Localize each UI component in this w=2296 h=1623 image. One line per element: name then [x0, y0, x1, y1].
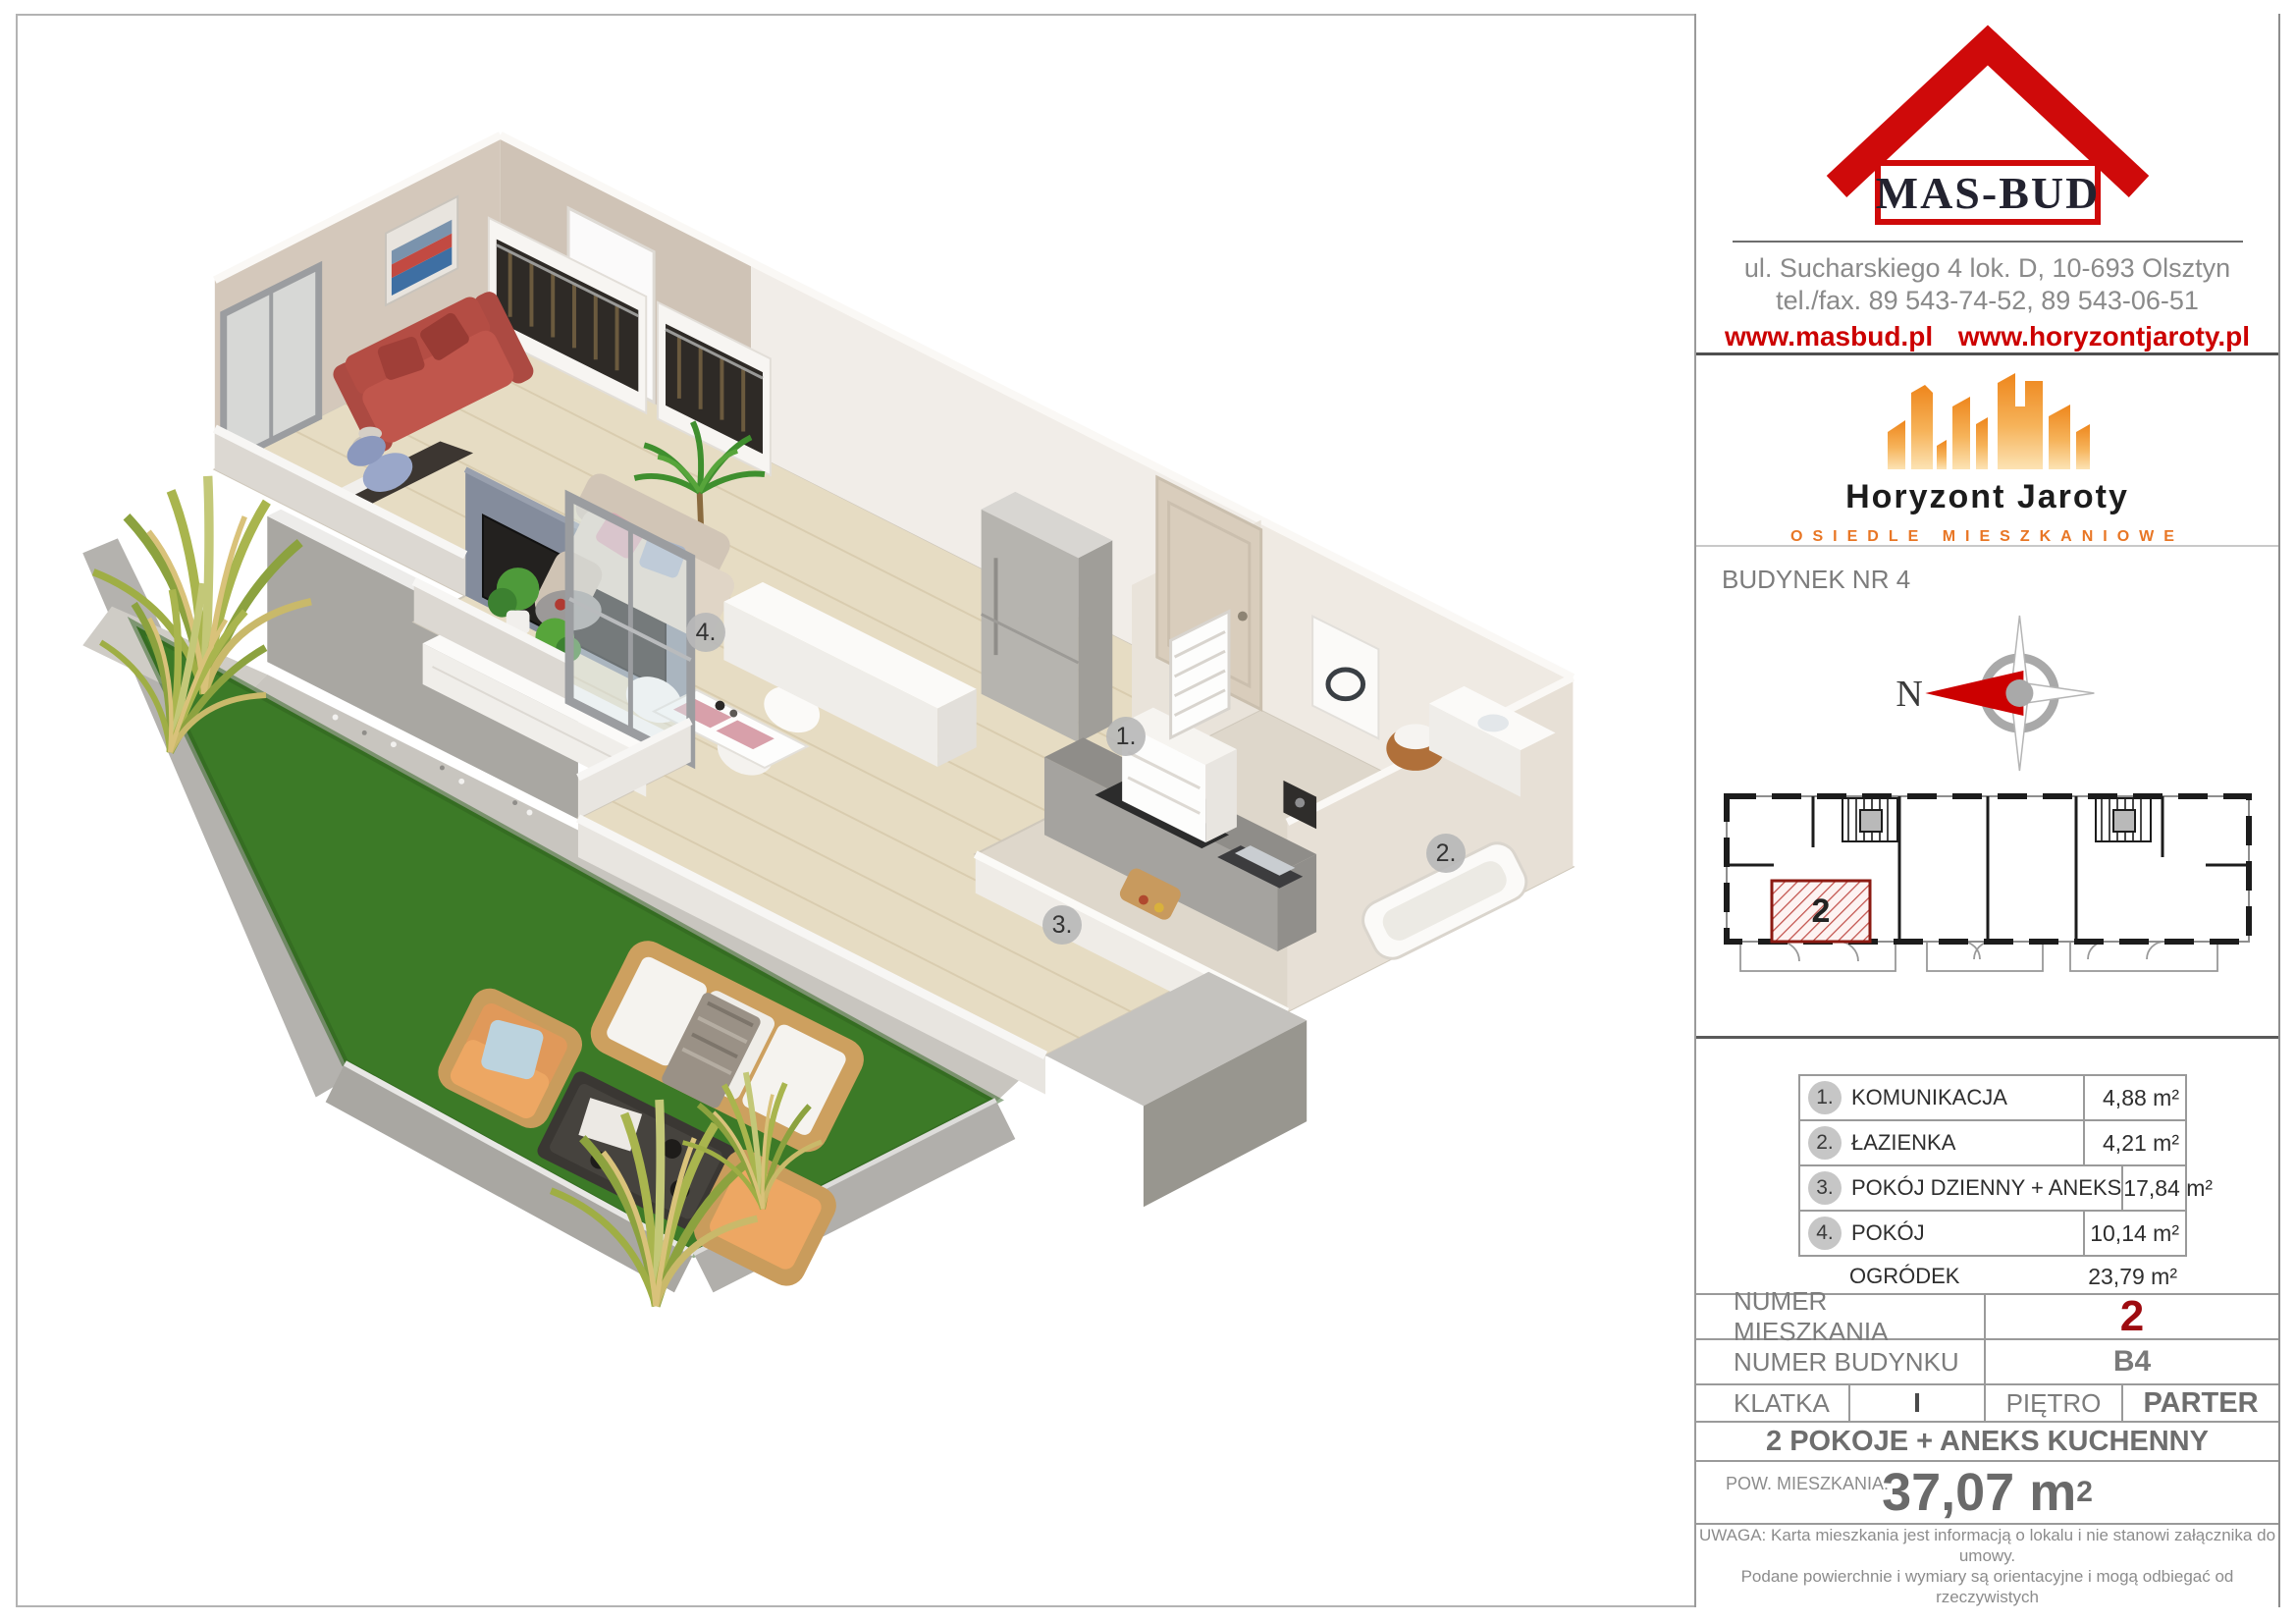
masbud-logo-icon: MAS-BUD	[1816, 24, 2160, 232]
logo-divider	[1733, 241, 2243, 243]
flat-number-value: 2	[1984, 1295, 2278, 1338]
room-area: 4,88	[2103, 1085, 2147, 1111]
disclaimer: UWAGA: Karta mieszkania jest informacją …	[1696, 1525, 2278, 1607]
info-panel: MAS-BUD ul. Sucharskiego 4 lok. D, 10-69…	[1694, 14, 2280, 1607]
room-area: 17,84	[2123, 1175, 2180, 1202]
room-name: POKÓJ	[1851, 1220, 2083, 1246]
staircase-icon-2	[2096, 798, 2151, 841]
building-label: BUDYNEK NR 4	[1696, 547, 2278, 595]
room-area: 10,14	[2090, 1220, 2147, 1247]
room-number-badge: 1.	[1808, 1081, 1842, 1114]
company-name: MAS-BUD	[1875, 168, 2100, 218]
room-name: KOMUNIKACJA	[1851, 1085, 2083, 1110]
building-number-label: NUMER BUDYNKU	[1696, 1340, 1984, 1383]
building-section: BUDYNEK NR 4 N	[1696, 547, 2278, 1039]
klatka-label: KLATKA	[1696, 1385, 1848, 1421]
floorplan-3d-view: 1.2.3.4.	[16, 14, 1694, 1607]
rooms-section: 1. KOMUNIKACJA 4,88 m² 2. ŁAZIENKA 4,21 …	[1696, 1039, 2278, 1293]
total-area-value: 37,07	[1882, 1462, 2014, 1523]
building-number-value: B4	[1984, 1340, 2278, 1383]
flat-number-row: NUMER MIESZKANIA 2	[1696, 1295, 2278, 1340]
room-number-badge: 3.	[1808, 1171, 1842, 1205]
website-horyzont-link[interactable]: www.horyzontjaroty.pl	[1958, 321, 2250, 352]
disclaimer-line-1: UWAGA: Karta mieszkania jest informacją …	[1696, 1525, 2278, 1566]
compass-icon: N	[1884, 610, 2119, 777]
floorplan-illustration	[16, 14, 1694, 1607]
estate-header: Horyzont Jaroty OSIEDLE MIESZKANIOWE	[1696, 355, 2278, 547]
staircase-icon	[1842, 798, 1897, 841]
miniplan-unit-number: 2	[1811, 893, 1830, 930]
room-marker: 1.	[1106, 717, 1146, 756]
compass-north-label: N	[1896, 674, 1922, 715]
disclaimer-line-2: Podane powierchnie i wymiary są orientac…	[1696, 1566, 2278, 1607]
staircase-floor-row: KLATKA I PIĘTRO PARTER	[1696, 1385, 2278, 1423]
company-phone: tel./fax. 89 543-74-52, 89 543-06-51	[1696, 285, 2278, 317]
table-row: 2. ŁAZIENKA 4,21 m²	[1800, 1119, 2185, 1164]
room-marker: 2.	[1426, 834, 1466, 873]
flat-number-label: NUMER MIESZKANIA	[1696, 1295, 1984, 1338]
apartment-card-page: 1.2.3.4. MAS-BUD ul. Sucharskiego 4 lok.…	[0, 0, 2296, 1623]
table-row: 1. KOMUNIKACJA 4,88 m²	[1800, 1076, 2185, 1119]
layout-description: 2 POKOJE + ANEKS KUCHENNY	[1696, 1423, 2278, 1462]
company-address: ul. Sucharskiego 4 lok. D, 10-693 Olszty…	[1696, 252, 2278, 285]
website-masbud-link[interactable]: www.masbud.pl	[1725, 321, 1933, 352]
room-name: POKÓJ DZIENNY + ANEKS	[1851, 1175, 2121, 1201]
room-marker: 4.	[686, 613, 725, 652]
company-header: MAS-BUD ul. Sucharskiego 4 lok. D, 10-69…	[1696, 14, 2278, 355]
details-section: NUMER MIESZKANIA 2 NUMER BUDYNKU B4 KLAT…	[1696, 1293, 2278, 1607]
pietro-value: PARTER	[2121, 1385, 2278, 1421]
room-name: ŁAZIENKA	[1851, 1130, 2083, 1156]
building-number-row: NUMER BUDYNKU B4	[1696, 1340, 2278, 1385]
estate-name: Horyzont Jaroty	[1696, 478, 2278, 516]
room-number-badge: 2.	[1808, 1126, 1842, 1160]
klatka-value: I	[1848, 1385, 1984, 1421]
estate-subtitle: OSIEDLE MIESZKANIOWE	[1696, 528, 2278, 546]
room-marker: 3.	[1042, 905, 1082, 945]
room-number-badge: 4.	[1808, 1217, 1842, 1250]
garden-area-value: 23,79	[2088, 1264, 2145, 1290]
garden-label: OGRÓDEK	[1849, 1264, 2083, 1289]
room-area: 4,21	[2103, 1130, 2147, 1157]
table-row: 4. POKÓJ 10,14 m²	[1800, 1210, 2185, 1255]
table-row: 3. POKÓJ DZIENNY + ANEKS 17,84 m²	[1800, 1164, 2185, 1210]
pietro-label: PIĘTRO	[1984, 1385, 2121, 1421]
rooms-table: 1. KOMUNIKACJA 4,88 m² 2. ŁAZIENKA 4,21 …	[1798, 1074, 2187, 1257]
estate-skyline-icon	[1860, 363, 2115, 471]
garden-row: OGRÓDEK 23,79 m²	[1798, 1257, 2183, 1296]
total-area-row: POW. MIESZKANIA: 37,07 m2	[1696, 1462, 2278, 1525]
building-miniplan: 2	[1715, 788, 2261, 985]
company-websites: www.masbud.pl www.horyzontjaroty.pl	[1696, 321, 2278, 352]
